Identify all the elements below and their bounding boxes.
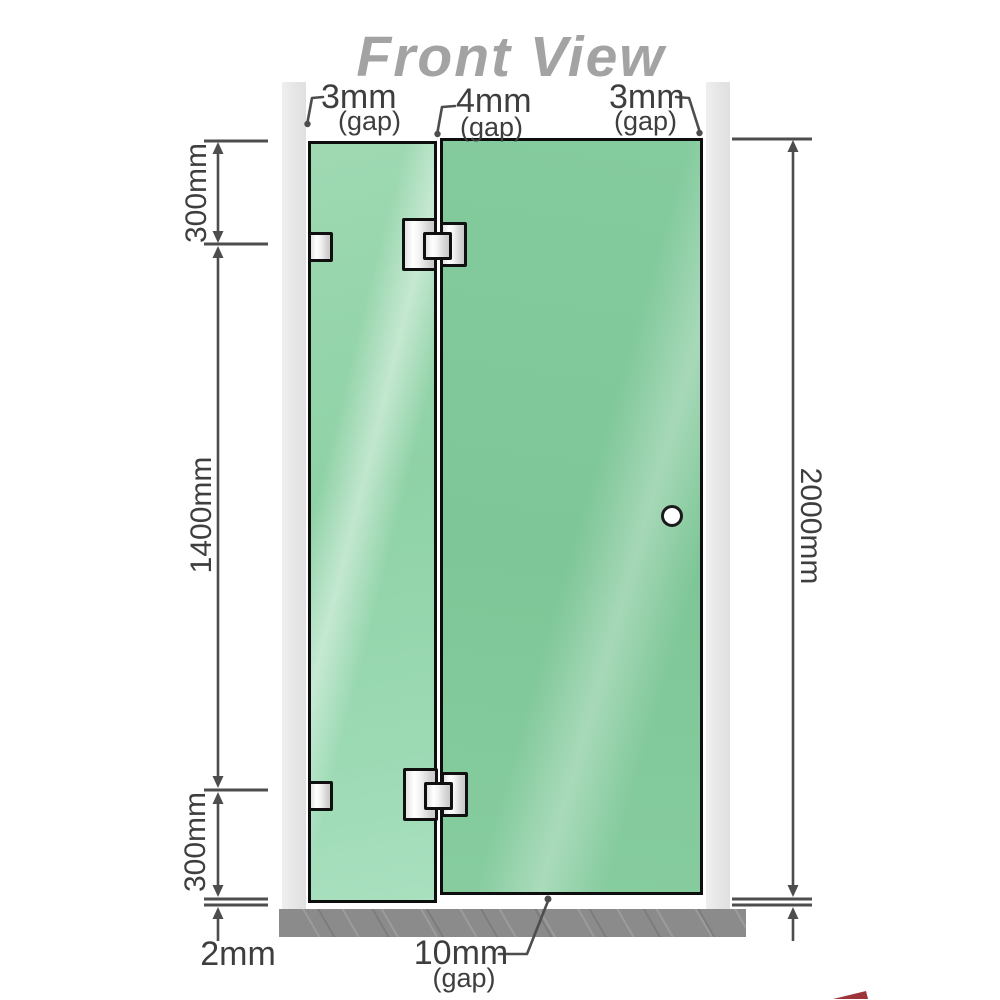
- dim-label-bottom-300mm: 300mm: [181, 792, 211, 892]
- left-wall-channel: [282, 82, 306, 909]
- wall-bracket-bottom: [308, 781, 333, 811]
- hinge-bottom-knuckle: [424, 782, 453, 810]
- hinge-top-knuckle: [423, 232, 452, 260]
- gap-label-left-qualifier: (gap): [338, 108, 401, 135]
- watermark-fragment: [833, 991, 868, 999]
- gap-label-middle-qualifier: (gap): [460, 114, 523, 141]
- dim-label-top-300mm: 300mm: [182, 143, 212, 243]
- wall-bracket-top: [308, 232, 333, 262]
- gap-label-bottom-qualifier: (gap): [432, 965, 495, 992]
- dim-label-2mm: 2mm: [200, 937, 276, 971]
- dim-label-1400mm: 1400mm: [187, 457, 217, 574]
- right-wall-channel: [706, 82, 730, 909]
- floor-base: [279, 909, 746, 937]
- dim-label-2000mm: 2000mm: [795, 468, 825, 585]
- front-view-diagram: Front View: [0, 0, 1000, 1000]
- gap-label-right-qualifier: (gap): [614, 108, 677, 135]
- door-handle-knob: [661, 505, 683, 527]
